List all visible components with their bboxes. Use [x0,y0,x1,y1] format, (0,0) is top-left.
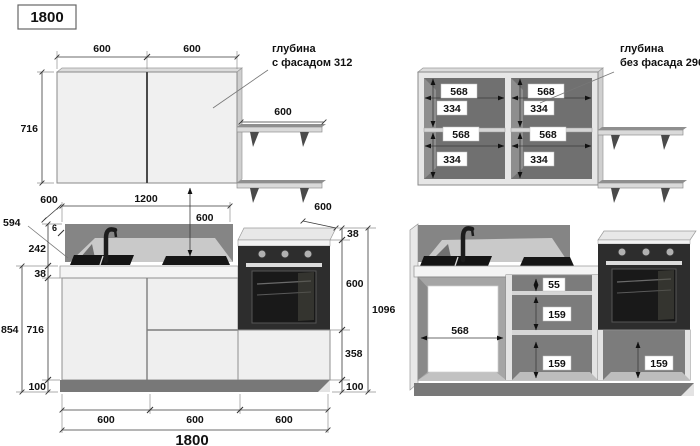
shelf-bracket [661,135,670,150]
note-depth-no-facade-2: без фасада 296 [620,57,700,69]
dim-side-depth: 594 [3,217,21,229]
dim-total-height: 1096 [372,304,396,316]
shelf-top [598,127,687,130]
wall-cabinet-open-view: 568 334 568 334 568 334 568 334 [418,43,700,203]
shelf-bracket [250,132,259,147]
kitchen-drawing-page: 1800 600 600 716 [0,0,700,446]
dim-drawer-3: 159 [650,358,668,370]
dim-c4-height: 334 [530,154,548,166]
plinth [60,380,330,392]
dim-back-width: 568 [451,325,469,337]
dim-plinth-height: 100 [28,381,46,393]
shelf-bracket [611,188,620,203]
base-fronts [62,278,238,380]
shelf-top [237,124,326,127]
shelf-bracket [300,188,309,203]
faucet-spout [472,229,473,236]
dim-total-left-height: 854 [1,324,19,336]
drawer-cabinet-stile [592,275,598,380]
dim-bottom-1: 600 [97,414,115,426]
cooktop [520,257,574,266]
oven-knob [642,248,650,256]
dim-c1-width: 568 [450,86,468,98]
shelf-top [237,180,326,183]
oven-handle [606,261,682,265]
dim-drawer-1: 159 [548,309,566,321]
oven-knob [618,248,626,256]
base-cabinet-open-view: 568 55 159 159 [410,224,696,396]
oven-handle [246,263,322,267]
oven-drawer-stile [685,330,690,380]
dim-wall-gap: 600 [196,212,214,224]
wall-cabinet-closed-view: 600 600 716 600 глубина с фасадом 312 [20,43,352,203]
dim-shelf-width: 600 [274,106,292,118]
dim-total-width: 1800 [175,432,208,446]
sink-cabinet-floor [418,372,506,380]
oven-glass-glare [298,272,314,321]
wall-shelf-3 [598,127,687,150]
note-depth-with-facade-2: с фасадом 312 [272,57,352,69]
shelf-bracket [611,135,620,150]
kitchen-technical-drawing: 1800 600 600 716 [0,0,700,446]
oven-knob [304,250,312,258]
dim-c4-width: 568 [539,129,557,141]
dim-c3-height: 334 [443,154,461,166]
dim-worktop-thickness: 38 [34,268,46,280]
dim-oven-depth: 600 [314,201,332,213]
oven-knob [258,250,266,258]
title-box: 1800 [18,5,76,29]
cabinet-side-face [598,68,603,185]
base-cabinet-front-view: 600 1200 600 594 6 242 38 854 716 100 60… [1,188,396,446]
oven [238,246,330,330]
drawing-title: 1800 [30,9,63,26]
dim-height: 716 [20,123,38,135]
wall-shelf-1 [237,124,326,147]
oven-counter-edge [598,240,690,244]
wall-shelf-4 [598,180,687,203]
dim-oven-top-thickness: 38 [347,228,359,240]
dim-panel-thickness: 6 [52,223,57,233]
oven-glass-glare [658,270,674,320]
dim-width-counter: 1200 [134,193,158,205]
shelf-bracket [661,188,670,203]
dim-c3-width: 568 [452,129,470,141]
dim-top-gap: 55 [548,279,560,291]
oven-drawer-stile [598,330,603,380]
oven-knob [281,250,289,258]
drawer-cabinet-floor [512,372,598,380]
shelf-top [598,180,687,183]
dim-backsplash-height: 242 [28,243,46,255]
dim-drawer-zone: 358 [345,348,363,360]
shelf-bracket [300,132,309,147]
shelf-board [237,127,322,132]
dim-depth-back: 600 [40,194,58,206]
dim-bottom-2: 600 [186,414,204,426]
dim-drawer-2: 159 [548,358,566,370]
dim-plinth-right: 100 [346,381,364,393]
dim-c2-height: 334 [530,103,548,115]
cabinet-top-face [418,68,603,72]
shelf-board [598,130,683,135]
shelf-board [237,183,322,188]
oven-counter-top [598,231,696,240]
cabinet-top-face [57,68,242,72]
drawer-cabinet-stile [506,275,512,380]
wall-shelf-2 [237,180,326,203]
dim-oven-height: 600 [346,278,364,290]
oven-open-view [598,244,690,330]
cooktop [162,256,230,265]
shelf-board [598,183,683,188]
shelf-bracket [250,188,259,203]
oven-counter-top [238,228,336,240]
faucet-spout [115,230,116,237]
dim-c1-height: 334 [443,103,461,115]
oven-counter-edge [238,240,330,246]
note-depth-with-facade-1: глубина [272,43,316,55]
worktop-front-edge [60,266,238,278]
plinth [414,383,694,396]
dim-door1: 600 [93,43,111,55]
dim-c2-width: 568 [537,86,555,98]
oven-knob [666,248,674,256]
oven-drawer-floor [603,372,690,380]
oven-drawer-front [238,330,330,380]
drawer-rail [512,291,592,295]
note-depth-no-facade-1: глубина [620,43,664,55]
side-panel [410,224,418,390]
dim-carcass-height: 716 [26,324,44,336]
drawer-rail [512,330,592,335]
dim-bottom-3: 600 [275,414,293,426]
dim-door2: 600 [183,43,201,55]
